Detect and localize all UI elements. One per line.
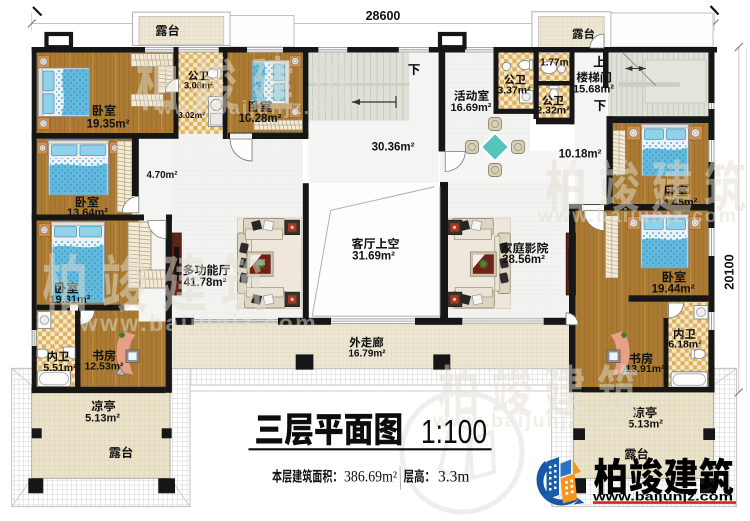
svg-text:www.baijunjz.com: www.baijunjz.com — [156, 97, 357, 119]
svg-text:4.70m²: 4.70m² — [146, 170, 178, 181]
svg-text:12.53m²: 12.53m² — [84, 361, 124, 373]
svg-text:3.37m²: 3.37m² — [497, 85, 531, 97]
svg-text:www.baijunjz.com: www.baijunjz.com — [79, 310, 319, 336]
svg-text:1:100: 1:100 — [421, 413, 487, 450]
svg-text:386.69m²: 386.69m² — [344, 469, 397, 486]
svg-text:6.18m²: 6.18m² — [668, 339, 702, 351]
svg-text:20100: 20100 — [722, 254, 737, 290]
svg-text:19.35m²: 19.35m² — [87, 119, 130, 131]
svg-text:16.79m²: 16.79m² — [348, 349, 386, 360]
svg-text:28600: 28600 — [366, 9, 401, 23]
svg-text:19.44m²: 19.44m² — [652, 284, 695, 296]
svg-text:5.51m²: 5.51m² — [43, 362, 77, 374]
svg-text:10.18m²: 10.18m² — [559, 149, 602, 161]
svg-text:2.32m²: 2.32m² — [536, 105, 570, 117]
svg-text:15.68m²: 15.68m² — [573, 84, 614, 96]
svg-text:30.36m²: 30.36m² — [372, 142, 415, 154]
svg-text:1.77m²: 1.77m² — [540, 58, 572, 69]
svg-text:3.3m: 3.3m — [438, 469, 469, 486]
svg-text:28.56m²: 28.56m² — [502, 254, 545, 266]
svg-text:www.baijunjz.com: www.baijunjz.com — [537, 205, 738, 227]
svg-text:31.69m²: 31.69m² — [352, 251, 395, 263]
svg-text:5.13m²: 5.13m² — [85, 413, 120, 425]
svg-text:16.69m²: 16.69m² — [451, 102, 492, 114]
svg-text:5.13m²: 5.13m² — [628, 419, 663, 431]
svg-text:13.64m²: 13.64m² — [67, 207, 108, 219]
